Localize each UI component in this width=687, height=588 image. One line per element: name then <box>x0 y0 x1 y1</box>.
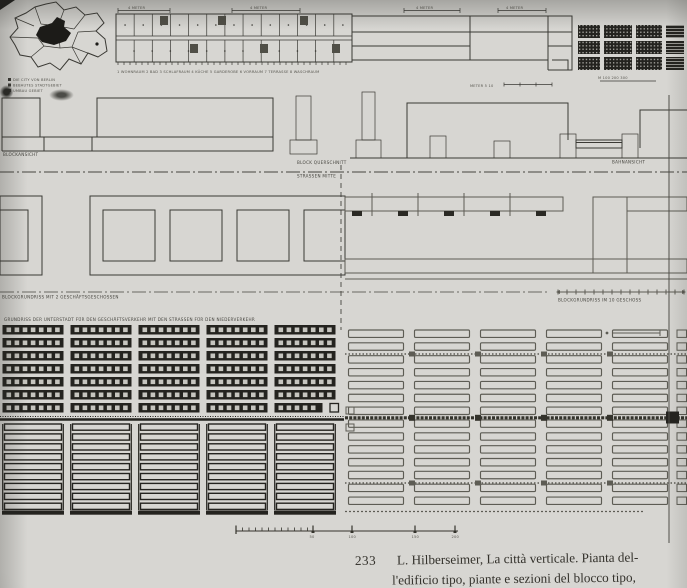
slab-ticks <box>352 193 546 216</box>
section-label-center: BLOCK QUERSCHNITT <box>297 160 347 165</box>
figure-caption: 233 L. Hilberseimer, La città verticale.… <box>350 547 687 588</box>
section-label-left: BLOCKANSICHT <box>3 152 39 157</box>
stair-tower <box>296 96 311 140</box>
stair-pier <box>494 141 510 158</box>
map-legend-line: BEBAUTES STADTGEBIET <box>13 84 62 88</box>
dimension-label: 4 METER <box>416 6 433 10</box>
city-inset-map <box>10 2 107 70</box>
site-plan-grid <box>578 25 684 70</box>
street-axis-label: STRASSEN MITTE <box>297 174 336 179</box>
site-scale-bar: M 100 200 300 <box>598 76 656 81</box>
stair-tower-base <box>356 140 381 158</box>
scan-smudge <box>0 85 13 99</box>
scan-smudge <box>49 89 74 101</box>
stair-tower <box>362 92 375 140</box>
stair-pier <box>622 134 638 158</box>
plan-scale-bar: METER 5 10 <box>470 83 552 89</box>
room-partitions <box>118 14 346 65</box>
dimension-label: 4 METER <box>250 6 267 10</box>
lower-city-plan-left <box>0 325 344 515</box>
upper-slab-band <box>627 197 687 211</box>
hatched-block-courtyards <box>90 196 345 275</box>
svg-text:200: 200 <box>452 535 460 539</box>
caption-line-1: L. Hilberseimer, La città verticale. Pia… <box>397 550 639 569</box>
hatched-block-partial <box>0 196 42 275</box>
upper-city-plan-right <box>345 330 687 512</box>
scale-bar: 50100150200 <box>236 526 459 540</box>
building-floor-plan: 4 METER 4 METER 4 METER 4 METER 1 WOHNRA… <box>116 6 572 88</box>
scale-label: M 100 200 300 <box>598 76 628 80</box>
figure-plate: DIE CITY VON BERLIN BEBAUTES STADTGEBIET… <box>0 0 687 588</box>
map-legend-line: UMBAU GEBIET <box>13 89 43 93</box>
caption-line-2: l'edificio tipo, piante e sezioni del bl… <box>392 570 636 588</box>
lower-plan-title: GRUNDRISS DER UNTERSTADT FÜR DEN GESCHÄF… <box>4 317 255 322</box>
dimension-label: 4 METER <box>128 6 145 10</box>
scale-label: METER 5 10 <box>470 84 494 88</box>
plan-outline <box>116 14 352 62</box>
book-page-photo: DIE CITY VON BERLIN BEBAUTES STADTGEBIET… <box>0 0 687 588</box>
cross-street-outline <box>593 197 627 273</box>
mid-plan-label-right: BLOCKGRUNDRISS IM 10 GESCHOSS <box>558 298 642 303</box>
section-label-right: BAHNANSICHT <box>612 160 645 165</box>
mid-plan-label-left: BLOCKGRUNDRISS MIT 2 GESCHÄFTSGESCHOSSEN <box>2 295 119 300</box>
left-elevation <box>2 98 273 151</box>
map-legend-line: DIE CITY VON BERLIN <box>13 78 55 82</box>
upper-slab-band <box>345 197 563 211</box>
dimension-label: 4 METER <box>506 6 523 10</box>
figure-number: 233 <box>355 553 376 569</box>
svg-text:50: 50 <box>310 535 315 539</box>
svg-text:100: 100 <box>349 535 357 539</box>
bridge-deck <box>576 140 622 148</box>
upper-slab-band <box>345 259 687 273</box>
right-elevation <box>350 103 687 158</box>
block-ground-plan: BLOCKGRUNDRISS MIT 2 GESCHÄFTSGESCHOSSEN… <box>0 193 687 303</box>
dimension-marks: 4 METER 4 METER 4 METER 4 METER <box>118 6 546 13</box>
map-marker-dot <box>95 42 98 45</box>
mid-scale-bar <box>556 290 686 295</box>
svg-text:150: 150 <box>412 535 420 539</box>
map-city-core <box>36 17 71 45</box>
plan-room-legend: 1 WOHNRAUM 2 BAD 3 SCHLAFRAUM 4 KÜCHE 5 … <box>117 69 319 74</box>
stair-tower-base <box>290 140 317 154</box>
plan-right-wing <box>352 16 572 70</box>
stair-pier <box>430 136 446 158</box>
legend-bullet <box>8 78 11 81</box>
